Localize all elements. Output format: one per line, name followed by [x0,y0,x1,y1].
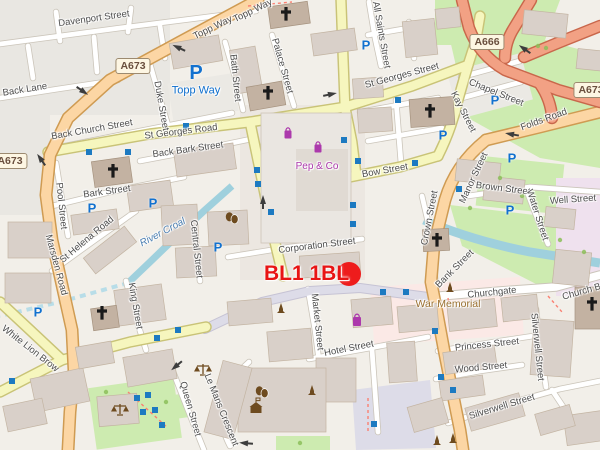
bus-stop-icon [403,289,409,295]
parking-icon: P [34,306,43,319]
bus-stop-icon [140,409,146,415]
bus-stop-icon [350,202,356,208]
bus-stop-icon [432,328,438,334]
bus-stop-icon [175,327,181,333]
map-canvas [0,0,600,450]
monument-icon [277,303,285,313]
bus-stop-icon [125,149,131,155]
parking-icon: P [149,197,158,210]
road-ref-badge-a673: A673 [115,58,150,74]
bus-stop-icon [380,289,386,295]
bus-stop-icon [254,167,260,173]
parking-icon: P [88,202,97,215]
bus-stop-icon [438,374,444,380]
postcode-label: BL1 1BL [264,263,349,284]
parking-icon: P [439,129,448,142]
bus-stop-icon [412,160,418,166]
map-viewport[interactable]: P P P P P P P P P P A673 A673 A666 A673 … [0,0,600,450]
parking-icon: P [189,63,202,83]
bus-stop-icon [134,395,140,401]
poi-label-topp-way-car-park: Topp Way [172,86,221,97]
parking-icon: P [506,204,515,217]
poi-label-pep-and-co: Pep & Co [293,162,341,172]
bus-stop-icon [268,209,274,215]
bus-stop-icon [9,378,15,384]
bus-stop-icon [159,422,165,428]
bus-stop-icon [86,149,92,155]
road-ref-badge-a666: A666 [469,34,504,50]
parking-icon: P [214,241,223,254]
road-ref-badge-a673: A673 [573,82,600,98]
bus-stop-icon [350,221,356,227]
bus-stop-icon [341,137,347,143]
bus-stop-icon [255,181,261,187]
road-ref-badge-a673: A673 [0,153,28,169]
bus-stop-icon [145,392,151,398]
bus-stop-icon [395,97,401,103]
poi-label-war-memorial: War Memorial [416,299,481,310]
parking-icon: P [508,152,517,165]
bus-stop-icon [371,421,377,427]
bus-stop-icon [355,158,361,164]
bus-stop-icon [154,335,160,341]
bus-stop-icon [152,407,158,413]
parking-icon: P [362,39,371,52]
bus-stop-icon [450,387,456,393]
